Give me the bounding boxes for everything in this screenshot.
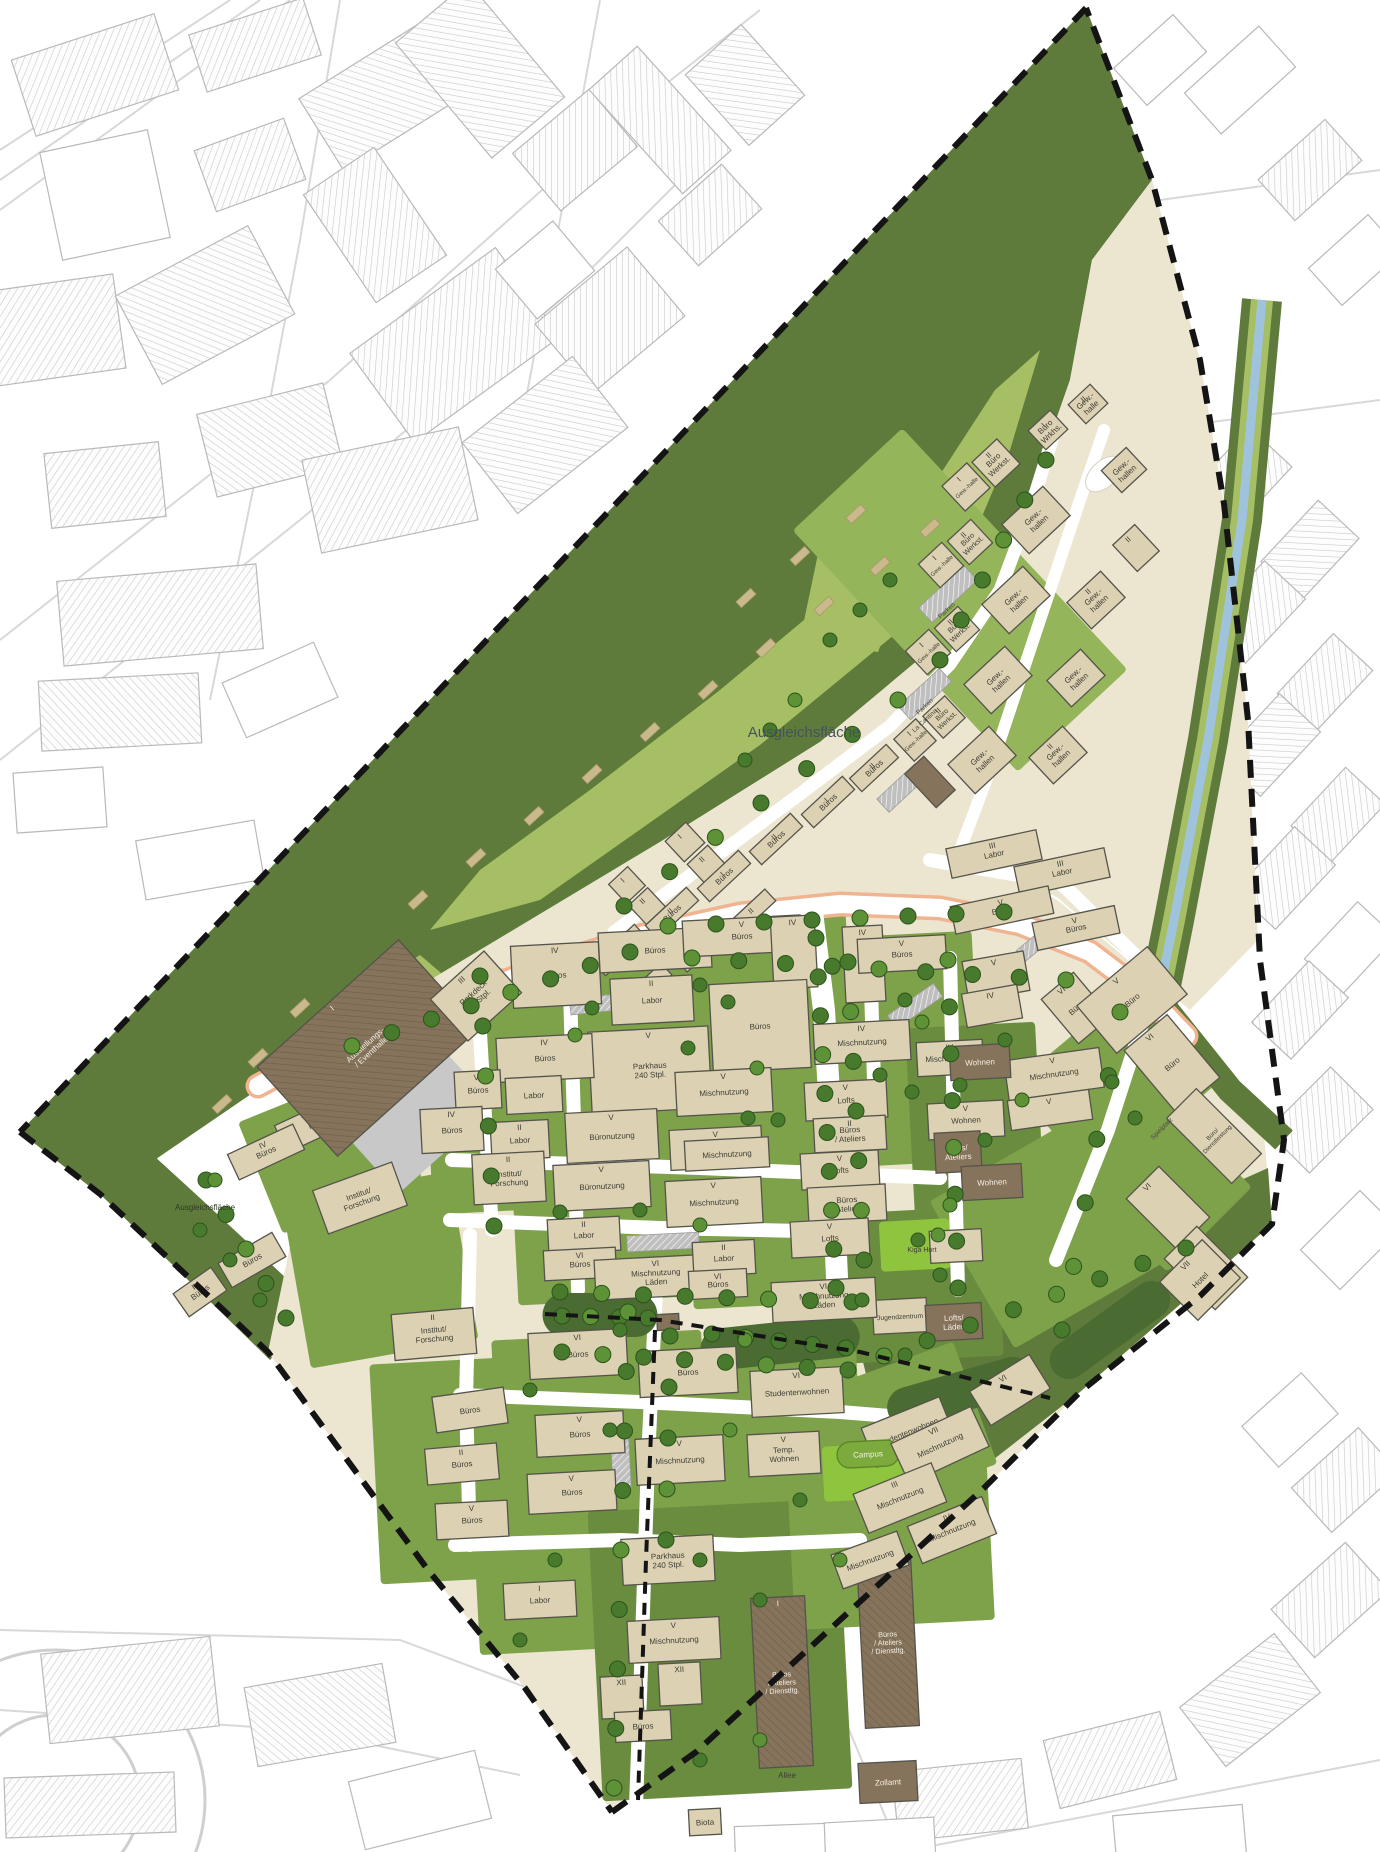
- building: VMischnutzung: [665, 1177, 763, 1228]
- tree: [606, 1780, 622, 1796]
- building-storeys-label: VI: [792, 1371, 800, 1380]
- tree: [223, 1253, 237, 1267]
- city-block: [40, 130, 170, 260]
- tree: [808, 930, 824, 946]
- building-storeys-label: II: [458, 1448, 463, 1457]
- tree: [753, 1593, 767, 1607]
- building: XII: [658, 1662, 702, 1706]
- tree: [940, 952, 956, 968]
- parking-strip: [627, 1232, 700, 1252]
- tree: [853, 1202, 869, 1218]
- building-use-label: Zollamt: [875, 1777, 902, 1787]
- building-use-label: Wohnen: [951, 1115, 981, 1126]
- tree: [856, 1252, 872, 1268]
- building-use-label: Büros: [569, 1259, 590, 1269]
- tree: [962, 1317, 978, 1333]
- tree: [799, 761, 815, 777]
- tree: [661, 1379, 677, 1395]
- tree: [1038, 452, 1054, 468]
- building-use-label: Büros: [467, 1085, 488, 1095]
- tree: [478, 1068, 494, 1084]
- building-use-label: 240 Stpl.: [652, 1560, 684, 1571]
- building: Wohnen: [949, 1043, 1011, 1080]
- building-use-label: Büros: [677, 1367, 698, 1377]
- tree: [523, 1383, 537, 1397]
- tree: [660, 1430, 676, 1446]
- tree: [933, 1268, 947, 1282]
- tree: [758, 1357, 774, 1373]
- tree: [817, 1086, 833, 1102]
- building: VLofts: [804, 1079, 888, 1121]
- tree: [799, 1359, 815, 1375]
- site-plan-map: IGew.-halleIIBüroWerkst.IGew.-halleIIBür…: [0, 0, 1380, 1852]
- tree: [660, 918, 676, 934]
- tree: [919, 1333, 935, 1349]
- tree: [998, 1033, 1012, 1047]
- tree: [824, 958, 840, 974]
- tree: [946, 1139, 962, 1155]
- building-use-label: Läden: [645, 1277, 668, 1287]
- city-block: [4, 1772, 176, 1838]
- building-use-label: Labor: [714, 1253, 735, 1263]
- building-storeys-label: II: [430, 1313, 435, 1322]
- tree: [771, 1113, 785, 1127]
- building: Labor: [505, 1076, 563, 1115]
- tree: [721, 995, 735, 1009]
- tree: [911, 1233, 925, 1247]
- tree: [853, 603, 867, 617]
- tree: [996, 532, 1012, 548]
- city-building: [57, 564, 264, 666]
- tree: [633, 1203, 647, 1217]
- tree: [738, 1333, 752, 1347]
- parking-rect: [627, 1232, 700, 1252]
- tree: [845, 1053, 861, 1069]
- tree: [472, 968, 488, 984]
- tree: [950, 1280, 966, 1296]
- tree: [823, 633, 837, 647]
- tree: [662, 864, 678, 880]
- building-use-label: Büros: [569, 1429, 590, 1439]
- building: IIInstitut/Forschung: [472, 1151, 547, 1205]
- city-building: [734, 1823, 825, 1852]
- building-storeys-label: II: [581, 1220, 586, 1229]
- tree: [552, 1284, 568, 1300]
- city-block: [13, 767, 107, 833]
- tree: [900, 908, 916, 924]
- tree: [812, 1008, 828, 1024]
- tree: [953, 1078, 967, 1092]
- tree: [1011, 969, 1027, 985]
- tree: [615, 1483, 631, 1499]
- tree: [553, 1205, 567, 1219]
- building: VBüros: [435, 1500, 509, 1540]
- tree: [890, 692, 906, 708]
- tree: [974, 572, 990, 588]
- tree: [480, 1118, 496, 1134]
- tree: [953, 612, 969, 628]
- tree: [815, 1047, 831, 1063]
- tree: [1017, 492, 1033, 508]
- tree: [810, 969, 826, 985]
- building: Biota: [688, 1808, 721, 1836]
- building: Mischnutzung: [684, 1137, 769, 1171]
- tree: [1049, 1286, 1065, 1302]
- building: VBüros: [857, 935, 947, 974]
- tree: [635, 1287, 651, 1303]
- tree: [659, 1481, 675, 1497]
- building-storeys-label: I: [777, 1599, 780, 1608]
- building-use-label: Büros: [441, 1125, 462, 1135]
- building-use-label: Büros: [749, 1021, 770, 1031]
- area-label: Ausgleichsfläche: [175, 1203, 236, 1212]
- tree: [965, 967, 981, 983]
- tree: [1089, 1131, 1105, 1147]
- building: Campus: [836, 1439, 899, 1468]
- building-storeys-label: I: [538, 1584, 541, 1593]
- tree: [1092, 1271, 1108, 1287]
- tree: [843, 1004, 859, 1020]
- tree: [915, 1015, 929, 1029]
- tree: [613, 1323, 627, 1337]
- city-block: [0, 274, 126, 386]
- tree: [851, 1153, 867, 1169]
- tree: [828, 1280, 844, 1296]
- tree: [871, 961, 887, 977]
- tree: [483, 1168, 499, 1184]
- building-storeys-label: XII: [616, 1678, 626, 1687]
- tree: [193, 1223, 207, 1237]
- tree: [208, 1173, 222, 1187]
- city-block: [44, 442, 166, 529]
- tree: [554, 1344, 570, 1360]
- building-use-label: Büros: [731, 931, 752, 941]
- building-storeys-label: IV: [858, 928, 867, 937]
- tree: [855, 1293, 869, 1307]
- building: IILabor: [610, 975, 694, 1025]
- tree: [1178, 1240, 1194, 1256]
- tree: [848, 1103, 864, 1119]
- building-use-label: Büros: [567, 1349, 588, 1359]
- building: VBüros: [527, 1470, 617, 1515]
- masterplan-svg: IGew.-halleIIBüroWerkst.IGew.-halleIIBür…: [0, 0, 1380, 1852]
- tree: [949, 1233, 965, 1249]
- building: IBüros/ Ateliers/ Dienstltg.: [857, 1556, 920, 1729]
- building: VBüronutzung: [565, 1109, 659, 1164]
- tree: [423, 1011, 439, 1027]
- tree: [1112, 1004, 1128, 1020]
- tree: [463, 998, 479, 1014]
- building-use-label: Büros: [561, 1487, 582, 1497]
- city-block: [38, 673, 201, 751]
- building-use-label: Büros: [461, 1515, 482, 1525]
- tree: [610, 1661, 626, 1677]
- city-building: [44, 442, 166, 529]
- city-building: [4, 1772, 176, 1838]
- tree: [344, 1038, 360, 1054]
- city-building: [0, 274, 126, 386]
- tree: [693, 978, 707, 992]
- tree: [943, 1198, 957, 1212]
- building-storeys-label: VI: [576, 1251, 584, 1260]
- tree: [582, 957, 598, 973]
- building-storeys-label: IV: [857, 1024, 866, 1033]
- building-use-label: Wohnen: [965, 1057, 995, 1068]
- building-storeys-label: II: [649, 979, 654, 988]
- tree: [622, 944, 638, 960]
- tree: [613, 1542, 629, 1558]
- building-storeys-label: VI: [819, 1282, 827, 1291]
- city-building: [41, 1636, 219, 1743]
- tree: [503, 984, 519, 1000]
- tree: [1105, 1075, 1119, 1089]
- tree: [840, 954, 856, 970]
- tree: [513, 1633, 527, 1647]
- building-storeys-label: II: [721, 1243, 726, 1252]
- tree: [1058, 972, 1074, 988]
- building: VIStudentenwohnen: [750, 1367, 844, 1418]
- tree: [278, 1310, 294, 1326]
- tree: [693, 1218, 707, 1232]
- building-use-label: Büros: [891, 949, 912, 959]
- tree: [543, 971, 559, 987]
- tree: [618, 1364, 634, 1380]
- building-use-label: / Ateliers: [835, 1134, 866, 1145]
- building-use-label: Biota: [696, 1817, 715, 1827]
- building-storeys-label: IV: [551, 946, 560, 955]
- building: Büros: [709, 979, 811, 1072]
- building-use-label: / Dienstltg.: [871, 1645, 906, 1656]
- tree: [636, 1349, 652, 1365]
- tree: [1005, 1302, 1021, 1318]
- building-use-label: Büros: [534, 1053, 555, 1063]
- building-storeys-label: IV: [447, 1110, 456, 1119]
- tree: [617, 1423, 633, 1439]
- building-use-label: Büros: [644, 945, 665, 955]
- city-building: [824, 1817, 936, 1852]
- city-block: [734, 1823, 825, 1852]
- tree: [662, 1328, 678, 1344]
- tree: [753, 1733, 767, 1747]
- building: Wohnen: [961, 1163, 1023, 1200]
- tree: [475, 1018, 491, 1034]
- tree: [548, 1553, 562, 1567]
- building-storeys-label: VI: [651, 1259, 659, 1268]
- tree: [1077, 1195, 1093, 1211]
- building-use-label: / Dienstltg.: [765, 1685, 800, 1696]
- tree: [821, 1163, 837, 1179]
- city-block: [824, 1817, 936, 1852]
- tree: [616, 898, 632, 914]
- tree: [932, 652, 948, 668]
- tree: [898, 993, 912, 1007]
- building-storeys-label: IV: [540, 1038, 549, 1047]
- tree: [788, 693, 802, 707]
- tree: [585, 1001, 599, 1015]
- tree: [804, 912, 820, 928]
- tree: [384, 1025, 400, 1041]
- tree: [238, 1241, 254, 1257]
- tree: [1066, 1258, 1082, 1274]
- tree: [840, 1362, 856, 1378]
- tree: [819, 1124, 835, 1140]
- building: VTemp.Wohnen: [747, 1431, 821, 1477]
- tree: [761, 1291, 777, 1307]
- tree: [750, 1061, 764, 1075]
- building: IIBüros: [425, 1443, 500, 1485]
- tree: [826, 1241, 842, 1257]
- building-use-label: Labor: [530, 1595, 551, 1605]
- building-storeys-label: VI: [573, 1333, 581, 1342]
- tree: [253, 1293, 267, 1307]
- tree: [723, 1423, 737, 1437]
- building-use-label: Büros: [632, 1721, 653, 1731]
- city-block: [41, 1636, 219, 1743]
- tree: [756, 914, 772, 930]
- tree: [258, 1276, 274, 1292]
- tree: [693, 1553, 707, 1567]
- tree: [717, 1354, 733, 1370]
- tree: [611, 1602, 627, 1618]
- tree: [941, 999, 957, 1015]
- tree: [1128, 1111, 1142, 1125]
- building-use-label: Büros: [451, 1459, 473, 1470]
- building-use-label: Labor: [524, 1090, 545, 1100]
- building: VLofts: [800, 1150, 880, 1190]
- tree: [883, 573, 897, 587]
- city-building: [40, 130, 170, 260]
- building: Büros/ Ateliers: [807, 1184, 887, 1224]
- tree: [1015, 1093, 1029, 1107]
- tree: [595, 1347, 611, 1363]
- building-use-label: Labor: [642, 995, 663, 1005]
- tree: [778, 956, 794, 972]
- building: Zollamt: [858, 1761, 918, 1804]
- tree: [684, 950, 700, 966]
- tree: [707, 829, 723, 845]
- tree: [658, 1532, 674, 1548]
- building: VIBüros: [528, 1328, 628, 1379]
- tree: [824, 1202, 840, 1218]
- tree: [677, 1288, 693, 1304]
- tree: [486, 1218, 502, 1234]
- tree: [741, 1111, 755, 1125]
- building: IIInstitut/Forschung: [391, 1308, 477, 1361]
- tree: [731, 953, 747, 969]
- tree: [905, 1085, 919, 1099]
- building: IVBüros: [420, 1106, 484, 1153]
- building-use-label: Büros: [707, 1279, 728, 1289]
- tree: [1054, 1322, 1070, 1338]
- area-label: Ausgleichsfläche: [748, 724, 861, 741]
- tree: [944, 1093, 960, 1109]
- building-storeys-label: XII: [674, 1665, 684, 1674]
- building-use-label: Labor: [574, 1230, 595, 1240]
- building: Jugendzentrum: [872, 1298, 928, 1335]
- building-use-label: 240 Stpl.: [634, 1070, 666, 1081]
- tree: [793, 1493, 807, 1507]
- tree: [753, 795, 769, 811]
- tree: [873, 1068, 887, 1082]
- tree: [677, 1352, 693, 1368]
- building: VIBüros: [688, 1269, 747, 1300]
- tree: [943, 1046, 959, 1062]
- city-block: [57, 564, 264, 666]
- tree: [681, 1041, 695, 1055]
- tree: [948, 906, 964, 922]
- building-storeys-label: II: [517, 1123, 522, 1132]
- tree: [594, 1285, 610, 1301]
- tree: [738, 753, 752, 767]
- tree: [996, 904, 1012, 920]
- tree: [978, 1133, 992, 1147]
- building-use-label: Campus: [853, 1449, 883, 1460]
- area-label: Kiga Hort: [907, 1247, 936, 1254]
- tree: [918, 964, 934, 980]
- city-building: [38, 673, 201, 751]
- tree: [603, 1423, 617, 1437]
- tree: [852, 910, 868, 926]
- area-label: Allee: [778, 1771, 796, 1780]
- building-storeys-label: IV: [788, 918, 797, 927]
- tree: [719, 1290, 735, 1306]
- building-use-label: Wohnen: [977, 1177, 1007, 1188]
- building-use-label: Labor: [510, 1135, 531, 1145]
- city-building: [13, 767, 107, 833]
- tree: [1135, 1255, 1151, 1271]
- tree: [833, 1553, 847, 1567]
- tree: [568, 1028, 582, 1042]
- tree: [608, 1721, 624, 1737]
- tree: [802, 1293, 818, 1309]
- building-storeys-label: II: [506, 1155, 511, 1164]
- building-use-label: Wohnen: [769, 1454, 799, 1465]
- building: ILabor: [503, 1580, 577, 1620]
- tree: [708, 916, 724, 932]
- tree: [931, 1228, 945, 1242]
